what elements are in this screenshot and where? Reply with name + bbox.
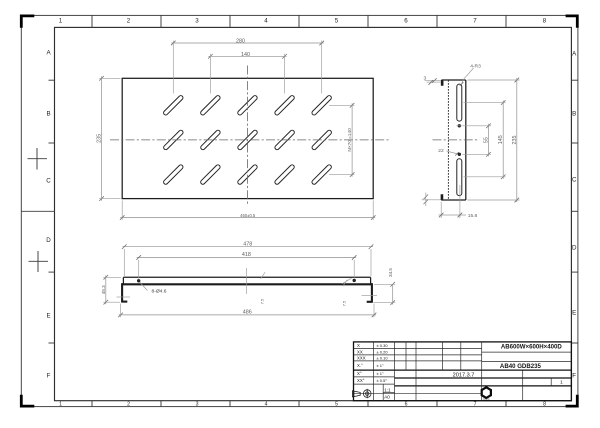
svg-text:C: C (572, 177, 577, 184)
svg-text:± 0.5°: ± 0.5° (377, 378, 388, 383)
svg-text:F: F (47, 373, 51, 380)
svg-text:DLKS: DLKS (483, 398, 490, 401)
svg-text:7.5: 7.5 (342, 300, 347, 306)
svg-text:6: 6 (405, 402, 408, 408)
svg-text:3: 3 (423, 76, 426, 82)
svg-text:F: F (572, 373, 576, 380)
svg-text:X.°: X.° (357, 363, 363, 368)
svg-text:8-Ø4.6: 8-Ø4.6 (152, 289, 167, 295)
svg-text:XX: XX (357, 349, 363, 354)
svg-text:7: 7 (474, 402, 477, 408)
svg-text:1:1: 1:1 (384, 387, 391, 392)
svg-text:D: D (46, 237, 51, 244)
svg-text:B: B (572, 111, 576, 118)
svg-text:B: B (46, 111, 50, 118)
svg-text:XX°: XX° (357, 378, 365, 383)
svg-text:1: 1 (560, 380, 563, 386)
svg-text:140: 140 (241, 52, 250, 58)
svg-text:D: D (572, 245, 577, 252)
svg-text:3: 3 (196, 402, 199, 408)
svg-text:3: 3 (195, 18, 199, 25)
svg-text:1: 1 (59, 18, 63, 25)
svg-text:E: E (572, 310, 576, 317)
svg-text:± 1°: ± 1° (377, 371, 385, 376)
svg-text:4-R3: 4-R3 (470, 64, 481, 70)
svg-text:± 0.30: ± 0.30 (377, 343, 389, 348)
svg-text:460±0.5: 460±0.5 (240, 213, 256, 218)
svg-text:E: E (46, 313, 50, 320)
svg-text:235: 235 (97, 134, 103, 143)
svg-text:34.5: 34.5 (388, 268, 393, 277)
svg-text:C: C (46, 178, 51, 185)
svg-text:48.3: 48.3 (101, 285, 106, 294)
svg-text:4: 4 (264, 18, 268, 25)
svg-text:55: 55 (484, 137, 490, 143)
svg-text:AB40 GDB235: AB40 GDB235 (500, 363, 542, 370)
svg-text:22: 22 (438, 148, 444, 154)
svg-text:5: 5 (335, 18, 339, 25)
svg-text:X: X (357, 343, 360, 348)
svg-text:7.5: 7.5 (260, 298, 265, 304)
svg-text:2: 2 (127, 402, 130, 408)
svg-text:AB600W×600H×400D: AB600W×600H×400D (501, 344, 563, 351)
svg-text:± 0.10: ± 0.10 (377, 356, 389, 361)
svg-text:478: 478 (243, 241, 252, 247)
svg-text:A0: A0 (384, 395, 390, 400)
svg-text:2017.3.7: 2017.3.7 (453, 373, 475, 379)
svg-text:15.8: 15.8 (468, 213, 478, 219)
svg-text:6: 6 (404, 18, 408, 25)
svg-text:± 0.20: ± 0.20 (377, 349, 389, 354)
svg-text:XXX: XXX (357, 356, 366, 361)
svg-text:± 1°: ± 1° (377, 363, 385, 368)
svg-text:418: 418 (242, 252, 251, 258)
svg-text:486: 486 (243, 310, 252, 316)
svg-text:4: 4 (265, 402, 268, 408)
svg-text:145: 145 (498, 135, 504, 144)
svg-text:235: 235 (512, 136, 518, 145)
svg-text:280: 280 (236, 39, 245, 45)
svg-text:X°: X° (357, 371, 362, 376)
svg-text:7: 7 (473, 18, 477, 25)
svg-text:1: 1 (59, 402, 62, 408)
svg-text:8: 8 (543, 402, 546, 408)
svg-text:5: 5 (335, 402, 338, 408)
svg-text:N×70 =140: N×70 =140 (347, 128, 353, 152)
svg-text:8: 8 (543, 18, 547, 25)
svg-text:2: 2 (127, 18, 131, 25)
